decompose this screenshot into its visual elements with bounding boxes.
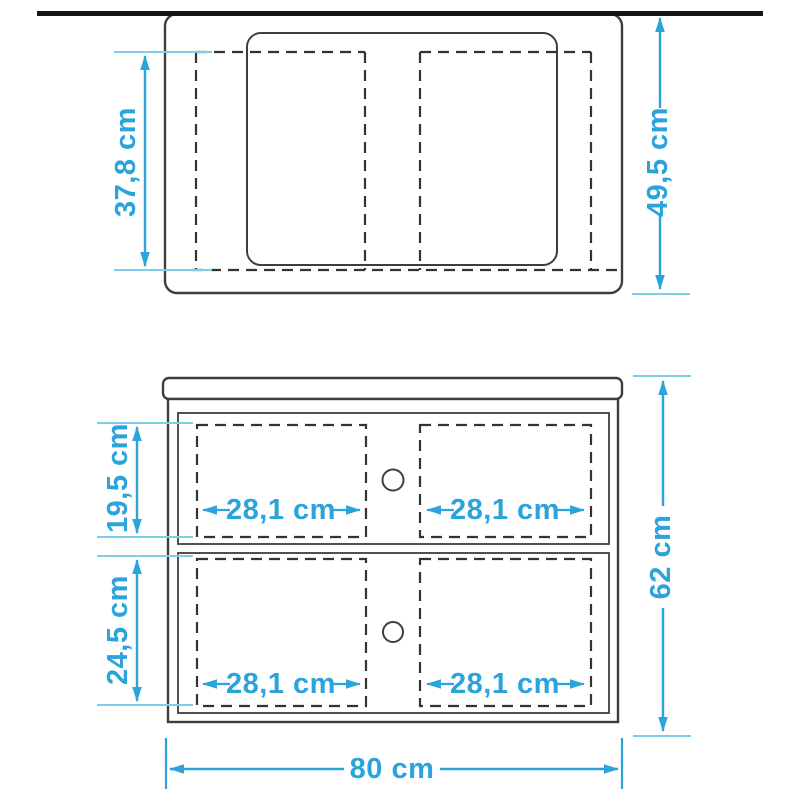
dimension-label: 49,5 cm	[642, 107, 674, 217]
countertop-slab	[163, 378, 622, 399]
drawer-knob-top	[383, 470, 404, 491]
dimension-total-width: 80 cm	[166, 738, 622, 789]
technical-drawing: 37,8 cm 49,5 cm	[0, 0, 800, 800]
dimension-label: 19,5 cm	[102, 423, 134, 533]
top-view: 37,8 cm 49,5 cm	[37, 14, 763, 295]
dimension-total-height: 62 cm	[633, 376, 691, 736]
dimension-label: 80 cm	[350, 753, 435, 785]
drawer-knob-bottom	[383, 622, 403, 642]
dimension-label: 28,1 cm	[450, 668, 560, 700]
dimension-label: 37,8 cm	[110, 107, 142, 217]
dimension-label: 62 cm	[645, 515, 677, 600]
dimension-label: 28,1 cm	[226, 494, 336, 526]
front-view: 28,1 cm 28,1 cm 28,1 cm 28,1 cm 19,5 cm	[97, 376, 691, 789]
dimension-label: 28,1 cm	[226, 668, 336, 700]
dimension-label: 28,1 cm	[450, 494, 560, 526]
sink-basin-outline	[247, 33, 557, 265]
dimension-label: 24,5 cm	[102, 575, 134, 685]
drawing-canvas: 37,8 cm 49,5 cm	[0, 0, 800, 800]
dimension-total-depth: 49,5 cm	[632, 18, 690, 294]
